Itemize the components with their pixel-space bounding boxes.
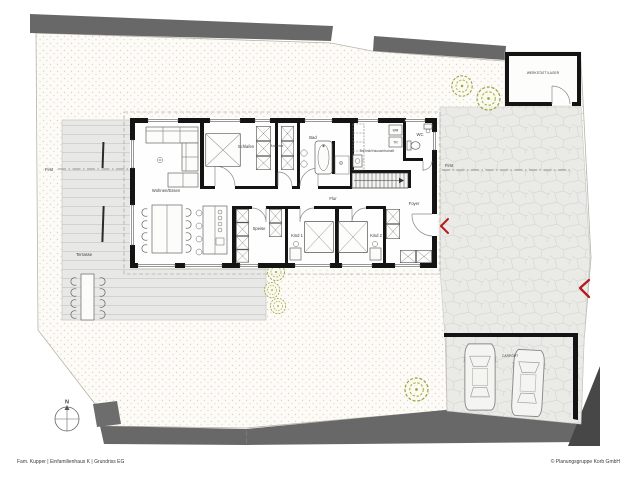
road-strip-bottom-left <box>93 401 121 427</box>
room-label-child2: Kind 2 <box>370 233 383 238</box>
workshop-label: WERKSTATT/LAGER <box>527 71 560 75</box>
washer-label: WM <box>393 129 399 133</box>
bed-child-2 <box>339 222 368 253</box>
ridge-label-left: First <box>45 167 54 172</box>
car-2 <box>508 349 548 417</box>
tree-icon <box>477 87 500 110</box>
room-label-pantry: Speise <box>253 226 266 231</box>
dressing-wardrobe <box>281 126 293 169</box>
room-label-bath: Bad <box>309 135 317 140</box>
shrub-icon <box>264 282 279 297</box>
staircase <box>352 173 408 188</box>
car-1 <box>462 344 499 410</box>
floor-plan-drawing: Terrasse First First WERKSTATT/LAGER CAR… <box>0 0 637 480</box>
terrace-label: Terrasse <box>76 252 93 257</box>
compass-icon: N <box>55 400 79 432</box>
room-label-utility: Technik/Hauswirtschaft <box>360 149 395 153</box>
tree-icon <box>405 378 428 401</box>
room-label-hall: Flur <box>329 196 337 201</box>
bed-child-1 <box>305 222 334 253</box>
bed-parents <box>206 134 241 167</box>
room-label-wc: WC <box>417 132 424 137</box>
toilet <box>411 142 420 150</box>
ridge-label-right: First <box>445 163 454 168</box>
footer-project-title: Fam. Kupper | Einfamilienhaus K | Grundr… <box>17 459 124 465</box>
compass-north-label: N <box>65 400 69 406</box>
shrub-icon <box>270 298 285 313</box>
floor-plan-page: Terrasse First First WERKSTATT/LAGER CAR… <box>0 0 637 480</box>
room-label-bedroom: Schlafen <box>238 144 255 149</box>
dryer-label: TR <box>393 141 398 145</box>
room-label-living: Wohnen/Essen <box>152 188 181 193</box>
room-label-dressing: Ankleide <box>270 144 283 148</box>
bedroom-wardrobe <box>256 126 270 169</box>
house: WM TR <box>130 118 437 268</box>
tree-icon <box>452 76 472 96</box>
carport-label: CARPORT <box>502 354 518 358</box>
room-label-child1: Kind 1 <box>291 233 304 238</box>
room-label-foyer: Foyer <box>409 201 420 206</box>
footer-copyright: © Planungsgruppe Korb GmbH <box>551 458 621 465</box>
title-block: Fam. Kupper | Einfamilienhaus K | Grundr… <box>17 458 620 465</box>
road-strip-bottom <box>100 426 247 445</box>
workshop-building: WERKSTATT/LAGER <box>505 52 581 106</box>
